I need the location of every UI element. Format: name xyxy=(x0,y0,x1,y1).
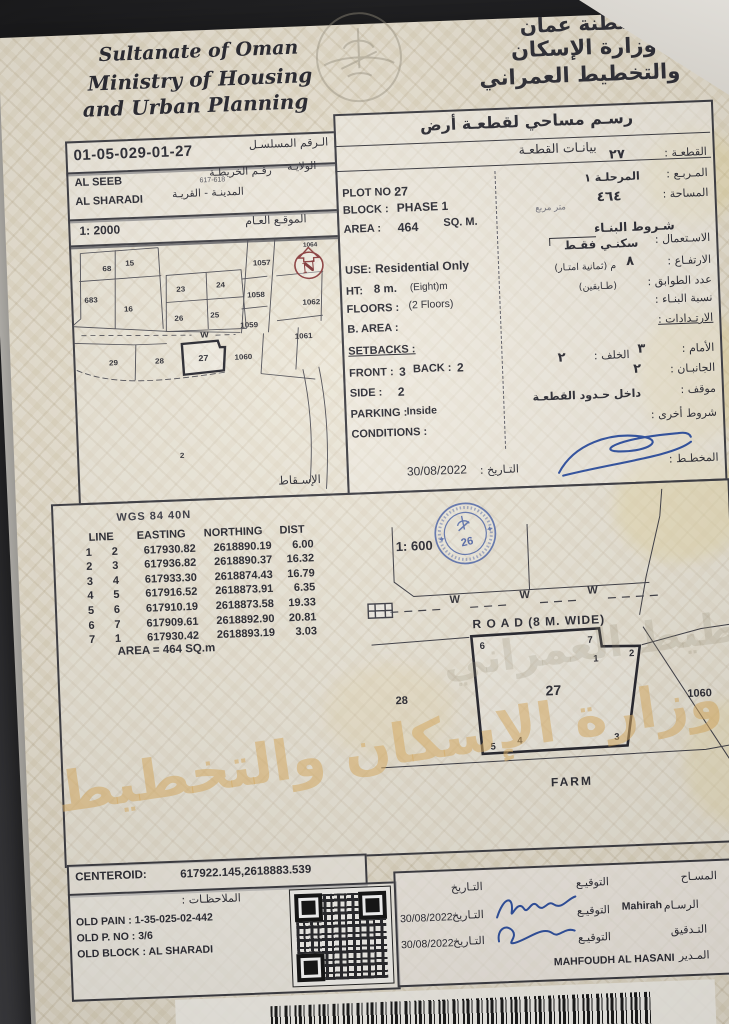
side-label: SIDE : xyxy=(350,387,383,400)
oman-emblem-watermark-icon xyxy=(297,10,421,115)
neighbor-plot-label: 28 xyxy=(395,695,408,707)
plot-label: 15 xyxy=(125,259,135,268)
sides-label-ar: الجانبـان : xyxy=(670,361,716,376)
plot-label: 68 xyxy=(102,264,112,273)
floors-value: (2 Floors) xyxy=(408,298,453,312)
qr-finder-icon xyxy=(358,891,387,920)
vertex-label: 2 xyxy=(629,648,635,659)
stamp-number: 26 xyxy=(460,535,475,549)
plot-value-ar: ٢٧ xyxy=(609,147,625,163)
plot-label: 683 xyxy=(84,296,98,305)
plot-label: 28 xyxy=(155,357,165,366)
building-area-label: B. AREA : xyxy=(347,322,399,336)
height-value-ar: ٨ xyxy=(626,254,635,269)
official-stamp: ✦ ✦ 26 xyxy=(428,496,503,571)
survey-scale: 1: 600 xyxy=(395,538,432,554)
photo-frame: Sultanate of Oman Ministry of Housing an… xyxy=(0,0,729,1024)
height-value: 8 m. xyxy=(374,283,397,296)
overview-scale: 1: 2000 xyxy=(79,222,120,238)
draftsman-name: Mahirah xyxy=(622,899,663,913)
location-label: الموقـع العـام xyxy=(245,212,307,227)
plot-number-label: 27 xyxy=(545,682,561,699)
block-value: PHASE 1 xyxy=(397,199,449,215)
date-label: التـاريخ xyxy=(451,880,483,894)
area-unit: SQ. M. xyxy=(443,216,478,229)
plot-label: 1059 xyxy=(240,320,258,329)
side-value: 2 xyxy=(398,385,405,399)
qr-finder-icon xyxy=(294,893,323,922)
plot-label: 25 xyxy=(210,311,220,320)
projection-label: الإسـقاط xyxy=(278,472,321,488)
surveyor-label: المسـاح xyxy=(680,869,717,883)
plot-label: 26 xyxy=(174,314,184,323)
issue-date: 30/08/2022 xyxy=(407,462,468,478)
area-value: 464 xyxy=(397,220,418,235)
vertex-label: 6 xyxy=(479,641,485,652)
road-w-label: W xyxy=(587,584,598,596)
use-label-ar: الاسـتعمال : xyxy=(655,231,711,246)
height-label-ar: الارتفـاع : xyxy=(667,253,711,268)
signature-label: التوقيـع xyxy=(578,930,612,944)
road-centerline xyxy=(81,330,235,341)
block-value-ar: المرحلـة ١ xyxy=(584,169,640,184)
overview-map: N 15 68 683 16 23 24 26 25 1057 1058 105… xyxy=(70,236,345,500)
utility-box-icon xyxy=(368,603,393,618)
farm-label: FARM xyxy=(551,774,594,790)
use-value-ar: سكنـي فقـط xyxy=(564,236,639,253)
date-label: التـاريخ xyxy=(452,908,484,922)
back-label-ar: الخلف : xyxy=(594,348,630,362)
other-conditions-label-ar: شروط أخرى : xyxy=(651,406,717,422)
plot-label: 1064 xyxy=(303,241,318,248)
plot-label: 29 xyxy=(109,358,118,367)
plot-label: 16 xyxy=(124,304,134,313)
col-dist: DIST xyxy=(271,523,314,539)
height-note: (Eight)m xyxy=(410,281,448,293)
front-label: FRONT : xyxy=(349,366,394,380)
vertex-label: 7 xyxy=(587,635,593,646)
audit-signature xyxy=(494,918,580,951)
front-label-ar: الأمام : xyxy=(682,341,715,355)
plot-label: 1060 xyxy=(234,352,252,361)
height-label: HT: xyxy=(346,285,364,298)
use-label: USE: xyxy=(345,264,372,277)
audit-date: 30/08/2022 xyxy=(401,937,454,951)
setbacks-label-ar: الارتـدادات : xyxy=(658,311,714,326)
plot-label-27: 27 xyxy=(198,353,209,363)
road-w-label: W xyxy=(200,330,210,340)
plot-label: 1058 xyxy=(247,290,266,299)
coordinates-table: LINE EASTING NORTHING DIST 12617930.8226… xyxy=(75,523,317,649)
parking-value: Inside xyxy=(406,404,437,417)
director-label: المـدير xyxy=(678,948,709,962)
plot-no-value: 27 xyxy=(394,184,408,199)
area-unit-ar: متر مربع xyxy=(535,202,566,213)
qr-finder-icon xyxy=(296,953,325,982)
ratio-label-ar: نسبة البنـاء : xyxy=(655,291,713,306)
plot-label: 1062 xyxy=(302,297,320,306)
plot-label: 1061 xyxy=(295,331,314,340)
draftsman-label: الرسـام xyxy=(664,898,700,912)
qr-code xyxy=(289,886,395,988)
plot-survey-map: 1: 600 W W W R O A D (8 M. WIDE) 6 7 1 2… xyxy=(356,478,729,850)
back-value-ar: ٢ xyxy=(557,350,566,365)
plot-label: 24 xyxy=(216,280,226,289)
map-number-value: 617-618 xyxy=(199,176,225,184)
area-label: AREA : xyxy=(343,222,381,235)
plot-label-ar: القطعـة : xyxy=(664,145,707,160)
plot-label: 1057 xyxy=(253,258,271,267)
document-paper: Sultanate of Oman Ministry of Housing an… xyxy=(0,10,729,1024)
plot-label: 2 xyxy=(180,451,185,460)
wilaya-value: AL SEEB xyxy=(74,175,122,189)
front-value: 3 xyxy=(399,365,406,379)
back-value: 2 xyxy=(457,360,464,374)
date-label: التـاريخ xyxy=(453,934,485,948)
audit-label: التـدقيق xyxy=(670,922,707,936)
vertex-label: 3 xyxy=(614,732,620,743)
parking-label-ar: موقف : xyxy=(680,382,716,396)
floors-label: FLOORS : xyxy=(346,302,399,316)
ministry-title-en-line1: Sultanate of Oman xyxy=(98,37,298,67)
sides-value-ar: ٢ xyxy=(633,362,642,377)
signature-label: التوقيـع xyxy=(577,903,611,917)
planner-label-ar: المخطـط : xyxy=(669,451,719,466)
area-label-ar: المساحة : xyxy=(662,186,708,201)
floors-label-ar: عدد الطوابق : xyxy=(647,273,712,288)
front-value-ar: ٣ xyxy=(637,341,646,356)
area-value-ar: ٤٦٤ xyxy=(596,188,621,205)
block-label-ar: المـربـع : xyxy=(666,166,708,181)
signature-label: التوقيـع xyxy=(576,875,610,889)
issue-date-label: التـاريخ : xyxy=(480,462,519,476)
north-arrow-icon: N xyxy=(294,247,323,279)
plot-label: 23 xyxy=(176,285,186,294)
plot-no-label: PLOT NO : xyxy=(342,186,398,200)
wilaya-label: الولايـة xyxy=(287,160,317,173)
block-label: BLOCK : xyxy=(343,203,389,217)
draftsman-date: 30/08/2022 xyxy=(400,911,453,925)
parking-label: PARKING : xyxy=(350,407,407,421)
floors-value-ar: (طـابقين) xyxy=(579,280,618,292)
road-w-label: W xyxy=(449,594,460,606)
planner-signature xyxy=(553,424,695,479)
back-label: BACK : xyxy=(413,362,452,375)
neighbor-plot-label: 1060 xyxy=(687,687,712,700)
road-w-label: W xyxy=(519,589,530,601)
